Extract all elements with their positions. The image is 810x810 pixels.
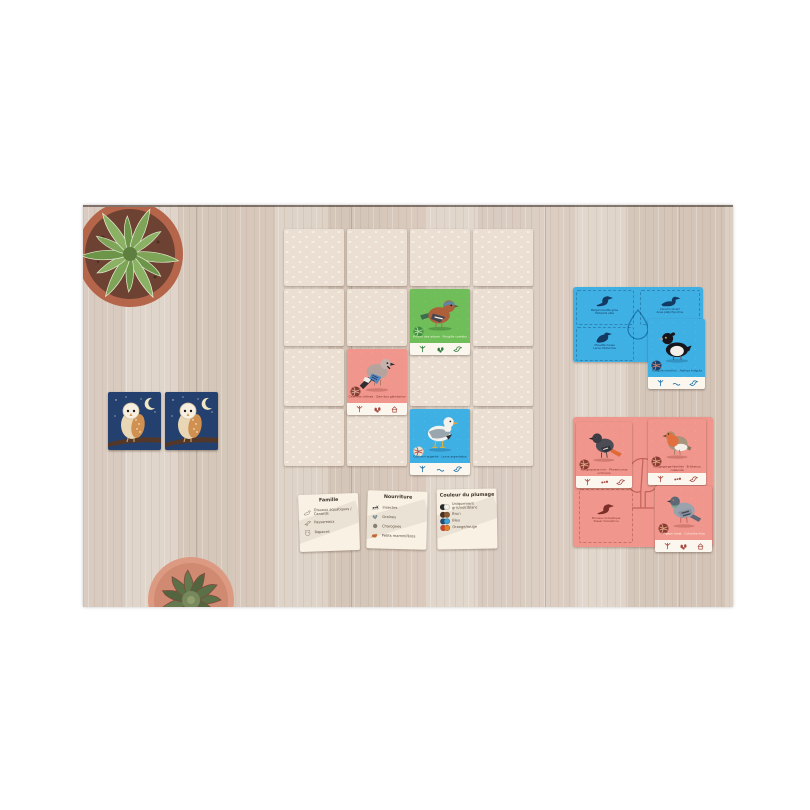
slot-latin: Passer domesticus — [593, 519, 618, 522]
card-attribute-strip — [410, 463, 470, 475]
yarn-badge-icon — [350, 382, 361, 393]
legend-item: Oiseaux aquatiques / Canards — [302, 507, 356, 517]
slot-latin: Larus ridibundus — [594, 346, 617, 349]
ant-icon — [673, 475, 682, 483]
legend-item: Charognes — [370, 522, 424, 531]
facedown-card[interactable] — [284, 349, 344, 406]
board-slot: Bergeronnette griseMotacilla alba — [576, 290, 634, 325]
pigeon-silhouette-icon — [594, 331, 616, 344]
mouse-icon — [370, 531, 380, 539]
legend-item: Bleu — [440, 517, 494, 523]
succulent-plant — [145, 554, 237, 607]
legend-label: Rapaces — [314, 530, 329, 534]
card-black-redstart[interactable]: Rougequeue noir · Phoenicurus ochruros — [576, 422, 632, 488]
moon-icon — [202, 398, 212, 410]
facedown-card[interactable] — [284, 289, 344, 346]
board-slot: Mouette rieuseLarus ridibundus — [576, 327, 634, 361]
footprint-icon — [355, 405, 364, 413]
legend-card-plumage: Couleur du plumage Uniquement gris/noir/… — [436, 488, 497, 549]
color-swatch — [440, 512, 450, 517]
card-gull[interactable]: Goéland argenté · Larus argentatus — [410, 409, 470, 475]
bird-icon — [616, 478, 625, 486]
color-swatch — [440, 525, 450, 530]
facedown-card[interactable] — [347, 409, 407, 466]
board-slot-empty: Moineau domestiquePasser domesticus — [579, 489, 633, 543]
seeds-icon — [370, 513, 380, 521]
carrion-icon — [370, 522, 380, 530]
legend-label: Charognes — [382, 524, 401, 528]
owl-outline-icon — [302, 528, 312, 536]
legend-item: Petits mammifères — [370, 531, 424, 540]
nest-icon — [696, 542, 705, 550]
yarn-badge-icon — [651, 452, 662, 463]
card-chaffinch[interactable]: Pinson des arbres · Fringilla coelebs — [410, 289, 470, 355]
legend-label: Insectes — [382, 506, 397, 510]
legend-label: Brun — [452, 512, 461, 516]
yarn-badge-icon — [413, 442, 424, 453]
card-caption: Goéland argenté · Larus argentatus — [410, 455, 470, 459]
footprint-icon — [656, 475, 665, 483]
slot-latin: Motacilla alba — [596, 311, 615, 314]
ant-icon — [600, 478, 609, 486]
sparrow-silhouette-icon — [594, 502, 618, 517]
facedown-card[interactable] — [473, 349, 533, 406]
facedown-card[interactable] — [473, 229, 533, 286]
legend-item: Orange/rouge — [440, 524, 494, 530]
legend-title: Famille — [300, 496, 356, 502]
legend-label: Bleu — [452, 519, 460, 523]
facedown-card[interactable] — [473, 289, 533, 346]
bird-icon — [453, 465, 462, 473]
card-attribute-strip — [655, 540, 712, 552]
card-caption: Fuligule morillon · Aythya fuligula — [648, 369, 705, 373]
bird-icon — [453, 345, 462, 353]
facedown-card[interactable] — [347, 289, 407, 346]
card-caption: Rougegorge familier · Erithacus rubecula — [648, 465, 706, 469]
legend-card-nourriture: Nourriture Insectes Graines Charognes — [366, 490, 427, 550]
facedown-card[interactable] — [473, 409, 533, 466]
card-caption: Geai des chênes · Garrulus glandarius — [347, 395, 407, 399]
legend-title: Couleur du plumage — [439, 492, 495, 497]
legend-item: Brun — [440, 511, 494, 517]
duck-outline-icon — [302, 509, 312, 517]
yarn-badge-icon — [579, 455, 590, 466]
legend-label: Oiseaux aquatiques / Canards — [314, 507, 356, 516]
table-photo: Pinson des arbres · Fringilla coelebs — [83, 205, 733, 607]
card-robin[interactable]: Rougegorge familier · Erithacus rubecula — [648, 419, 706, 485]
aloe-plant — [83, 205, 189, 317]
card-attribute-strip — [576, 476, 632, 488]
legend-label: Passereaux — [314, 520, 334, 525]
songbird-outline-icon — [302, 518, 312, 526]
legend-title: Nourriture — [370, 493, 426, 499]
bird-icon — [689, 475, 698, 483]
footprint-icon — [583, 478, 592, 486]
legend-label: Uniquement gris/noir/blanc — [452, 502, 494, 510]
seeds-icon — [373, 405, 382, 413]
legend-label: Petits mammifères — [382, 534, 416, 539]
card-jay[interactable]: Geai des chênes · Garrulus glandarius — [347, 349, 407, 415]
legend-item: Rapaces — [302, 527, 356, 537]
duck-silhouette-icon — [659, 295, 681, 308]
card-attribute-strip — [347, 403, 407, 415]
memory-grid: Pinson des arbres · Fringilla coelebs — [284, 229, 533, 466]
wave-icon — [436, 465, 445, 473]
legend-card-famille: Famille Oiseaux aquatiques / Canards Pas… — [298, 493, 360, 552]
color-swatch — [440, 504, 450, 509]
bird-icon — [689, 379, 698, 387]
footprint-icon — [656, 379, 665, 387]
facedown-card[interactable] — [284, 229, 344, 286]
card-barn-owl[interactable] — [108, 392, 161, 450]
songbird-silhouette-icon — [594, 294, 616, 309]
nest-icon — [390, 405, 399, 413]
legend-item: Uniquement gris/noir/blanc — [440, 502, 494, 511]
seeds-icon — [679, 542, 688, 550]
legend-label: Graines — [382, 515, 396, 519]
facedown-card[interactable] — [410, 349, 470, 406]
legend-label: Orange/rouge — [452, 525, 477, 529]
yarn-badge-icon — [413, 322, 424, 333]
footprint-icon — [418, 345, 427, 353]
slot-latin: Anas platyrhynchos — [657, 310, 684, 313]
footprint-icon — [418, 465, 427, 473]
card-caption: Pinson des arbres · Fringilla coelebs — [410, 335, 470, 339]
footprint-icon — [663, 542, 672, 550]
facedown-card[interactable] — [347, 229, 407, 286]
legend-item: Insectes — [370, 503, 424, 512]
card-attribute-strip — [648, 473, 706, 485]
facedown-card[interactable] — [284, 409, 344, 466]
card-tufted-duck[interactable]: Fuligule morillon · Aythya fuligula — [648, 319, 705, 389]
legend-item: Graines — [370, 513, 424, 522]
card-caption: Rougequeue noir · Phoenicurus ochruros — [576, 468, 632, 472]
color-swatch — [440, 518, 450, 523]
legend-item: Passereaux — [302, 517, 356, 527]
card-caption: Pigeon biset · Columba livia — [655, 532, 712, 536]
yarn-badge-icon — [658, 519, 669, 530]
seeds-icon — [436, 345, 445, 353]
moon-icon — [145, 398, 155, 410]
card-pigeon[interactable]: Pigeon biset · Columba livia — [655, 486, 712, 552]
wave-icon — [672, 379, 681, 387]
card-attribute-strip — [410, 343, 470, 355]
card-barn-owl[interactable] — [165, 392, 218, 450]
wood-grain-line — [545, 207, 546, 607]
yarn-badge-icon — [651, 356, 662, 367]
ant-icon — [370, 503, 380, 511]
card-attribute-strip — [648, 377, 705, 389]
facedown-card[interactable] — [410, 229, 470, 286]
